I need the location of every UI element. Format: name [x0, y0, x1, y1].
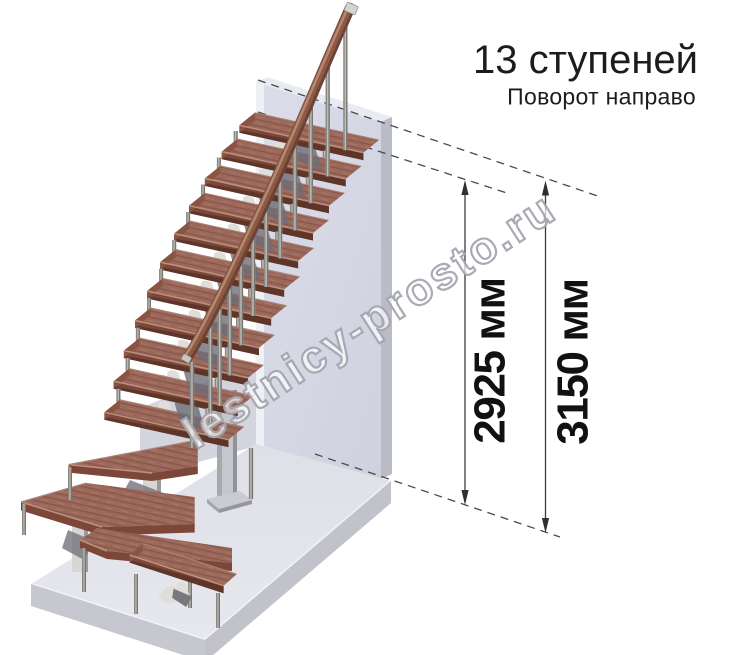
svg-text:2925 мм: 2925 мм — [466, 278, 515, 443]
svg-text:13 ступеней: 13 ступеней — [473, 38, 698, 82]
svg-text:3150 мм: 3150 мм — [549, 279, 598, 444]
svg-text:Поворот направо: Поворот направо — [507, 84, 696, 110]
